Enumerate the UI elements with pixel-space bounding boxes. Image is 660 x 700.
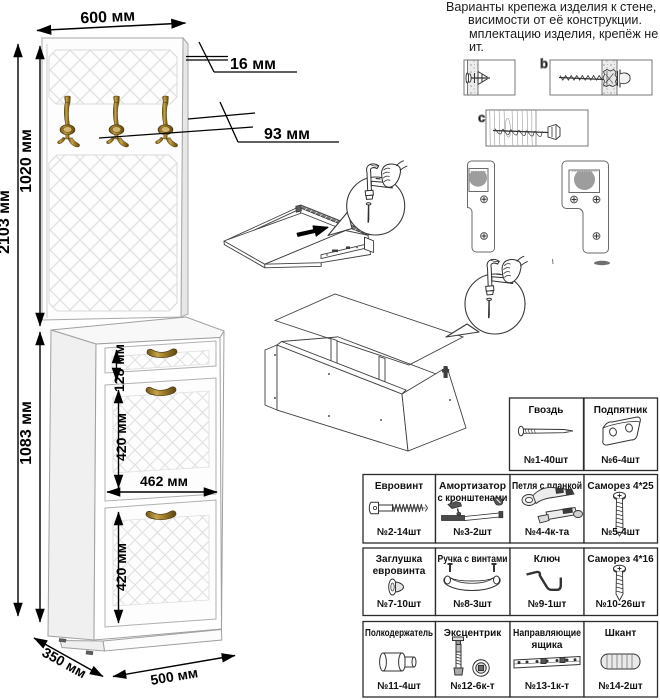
svg-text:ит.: ит. (469, 40, 484, 54)
svg-text:Заглушка: Заглушка (376, 554, 423, 565)
svg-text:евровинта: евровинта (373, 566, 426, 577)
svg-text:№14-2шт: №14-2шт (598, 681, 642, 692)
svg-text:№9-1шт: №9-1шт (528, 599, 567, 610)
svg-text:Направляющие: Направляющие (513, 628, 581, 639)
svg-text:c: c (478, 110, 485, 125)
svg-text:2103 мм: 2103 мм (0, 190, 13, 254)
svg-text:420 мм: 420 мм (113, 543, 129, 591)
svg-text:№2-14шт: №2-14шт (377, 527, 421, 538)
svg-text:№11-4шт: №11-4шт (377, 681, 421, 692)
svg-text:№12-6к-т: №12-6к-т (450, 681, 494, 692)
svg-text:600 мм: 600 мм (80, 8, 136, 28)
svg-text:Полкодержатель: Полкодержатель (365, 628, 433, 639)
svg-text:Амортизатор: Амортизатор (439, 481, 506, 492)
svg-text:420 мм: 420 мм (113, 413, 129, 461)
svg-text:мплектацию изделия, крепёж не: мплектацию изделия, крепёж не (469, 27, 658, 41)
svg-text:b: b (540, 56, 548, 71)
svg-text:Саморез 4*25: Саморез 4*25 (587, 481, 654, 492)
svg-text:Евровинт: Евровинт (375, 481, 423, 492)
svg-text:1020 мм: 1020 мм (18, 129, 35, 193)
svg-text:Шкант: Шкант (605, 628, 637, 639)
svg-text:462 мм: 462 мм (140, 473, 188, 489)
svg-text:16 мм: 16 мм (230, 56, 276, 73)
svg-text:128 мм: 128 мм (111, 344, 127, 392)
svg-text:№7-10шт: №7-10шт (377, 599, 421, 610)
svg-text:№6-4шт: №6-4шт (601, 455, 640, 466)
svg-text:Ключ: Ключ (534, 554, 561, 565)
svg-text:№1-40шт: №1-40шт (524, 455, 568, 466)
svg-text:№8-3шт: №8-3шт (453, 599, 492, 610)
svg-text:ящика: ящика (532, 640, 563, 651)
svg-text:№5-4шт: №5-4шт (601, 527, 640, 538)
svg-text:1083 мм: 1083 мм (18, 401, 35, 465)
svg-text:500 мм: 500 мм (149, 664, 199, 688)
svg-text:№10-26шт: №10-26шт (596, 599, 646, 610)
svg-text:№4-4к-та: №4-4к-та (525, 527, 570, 538)
svg-text:Варианты крепежа изделия к сте: Варианты крепежа изделия к стене, (446, 0, 656, 14)
svg-text:№3-2шт: №3-2шт (453, 527, 492, 538)
svg-text:№13-1к-т: №13-1к-т (525, 681, 569, 692)
svg-text:Гвоздь: Гвоздь (529, 405, 564, 416)
svg-text:висимости от её конструкции.: висимости от её конструкции. (468, 13, 642, 27)
svg-text:Саморез 4*16: Саморез 4*16 (587, 554, 654, 565)
svg-text:93 мм: 93 мм (264, 126, 310, 143)
svg-text:Подпятник: Подпятник (594, 405, 648, 416)
